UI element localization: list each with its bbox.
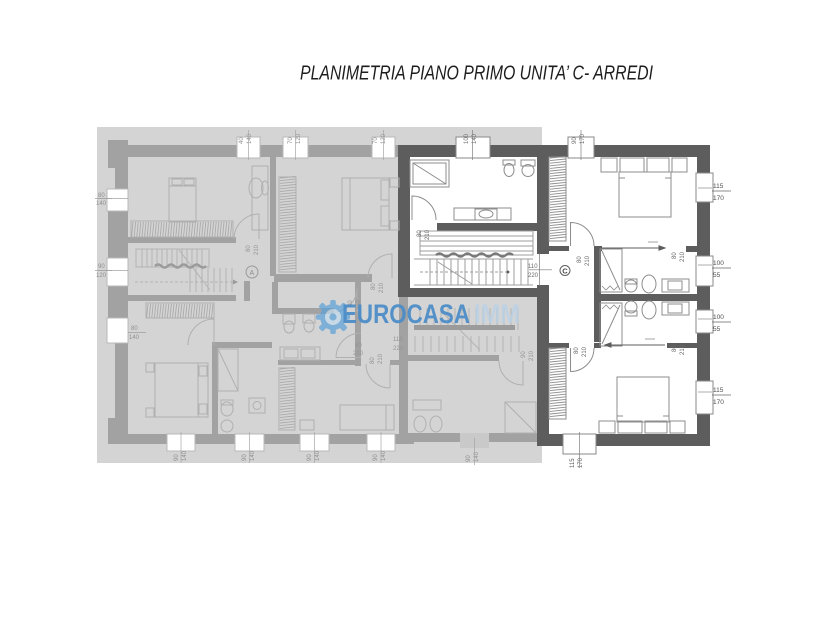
svg-text:100: 100: [713, 314, 724, 321]
svg-text:170: 170: [713, 195, 724, 202]
svg-text:EUROCASA: EUROCASA: [342, 299, 470, 329]
svg-text:55: 55: [713, 326, 721, 333]
svg-text:90: 90: [466, 455, 472, 462]
svg-text:210: 210: [680, 344, 686, 355]
svg-text:IMM: IMM: [474, 299, 520, 329]
svg-text:80: 80: [417, 230, 423, 237]
svg-text:40: 40: [239, 137, 245, 144]
svg-text:210: 210: [425, 229, 431, 240]
svg-text:70: 70: [373, 137, 379, 144]
svg-text:120: 120: [296, 133, 302, 144]
svg-text:80: 80: [574, 347, 580, 354]
svg-text:120: 120: [381, 133, 387, 144]
svg-text:90: 90: [174, 454, 180, 461]
svg-text:80: 80: [131, 326, 138, 332]
svg-text:90: 90: [373, 454, 379, 461]
svg-text:100: 100: [464, 133, 470, 144]
svg-text:C: C: [562, 266, 568, 275]
svg-text:210: 210: [378, 353, 384, 364]
svg-text:80: 80: [370, 357, 376, 364]
svg-text:90: 90: [242, 454, 248, 461]
svg-text:80: 80: [672, 345, 678, 352]
svg-text:115: 115: [713, 387, 724, 394]
svg-text:210: 210: [379, 282, 385, 293]
svg-text:90: 90: [307, 454, 313, 461]
svg-text:140: 140: [247, 133, 253, 144]
svg-text:210: 210: [582, 346, 588, 357]
svg-text:70: 70: [288, 137, 294, 144]
svg-text:220: 220: [393, 346, 404, 352]
svg-text:140: 140: [129, 335, 140, 341]
svg-text:210: 210: [529, 350, 535, 361]
svg-text:80: 80: [246, 245, 252, 252]
svg-text:140: 140: [472, 133, 478, 144]
svg-text:118: 118: [393, 337, 403, 343]
svg-text:140: 140: [315, 450, 321, 461]
svg-text:80: 80: [577, 256, 583, 263]
svg-text:55: 55: [713, 272, 721, 279]
svg-text:115: 115: [570, 458, 576, 468]
svg-text:170: 170: [713, 399, 724, 406]
svg-text:210: 210: [254, 244, 260, 255]
svg-text:140: 140: [474, 451, 480, 462]
svg-text:140: 140: [96, 201, 107, 207]
svg-text:140: 140: [381, 450, 387, 461]
svg-text:170: 170: [578, 457, 584, 468]
svg-text:PLANIMETRIA PIANO PRIMO UNITA’: PLANIMETRIA PIANO PRIMO UNITA’ C- ARREDI: [300, 63, 653, 85]
svg-text:115: 115: [713, 183, 724, 190]
svg-text:100: 100: [713, 260, 724, 267]
svg-text:110: 110: [528, 264, 538, 270]
svg-text:80: 80: [355, 343, 362, 349]
svg-text:A: A: [250, 270, 255, 277]
svg-text:140: 140: [182, 450, 188, 461]
svg-text:220: 220: [528, 273, 539, 279]
svg-text:90: 90: [521, 351, 527, 358]
svg-text:120: 120: [96, 273, 107, 279]
svg-text:210: 210: [680, 251, 686, 262]
svg-text:80: 80: [672, 252, 678, 259]
svg-text:210: 210: [353, 351, 364, 357]
svg-text:210: 210: [585, 255, 591, 266]
svg-text:90: 90: [572, 137, 578, 144]
svg-text:90: 90: [98, 264, 105, 270]
svg-text:80: 80: [371, 283, 377, 290]
svg-text:140: 140: [250, 450, 256, 461]
